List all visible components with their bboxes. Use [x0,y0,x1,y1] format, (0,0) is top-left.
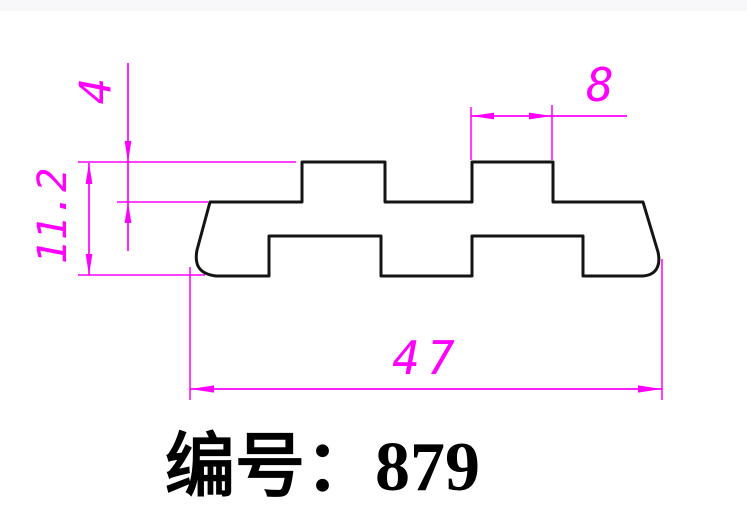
dimension-profile-width: 47 [190,331,662,393]
arrowhead-down-icon [86,254,93,275]
arrowhead-right-icon [529,113,552,120]
arrowhead-down-icon [125,141,132,162]
dimension-tab-width: 8 [471,58,627,119]
extension-lines [78,105,662,400]
technical-drawing-svg: 4 11.2 8 47 编号：879 [0,0,747,521]
dim-label-tab-width: 8 [586,58,614,112]
arrowhead-right-icon [638,385,662,392]
arrowhead-left-icon [471,113,494,120]
arrowhead-up-icon [86,163,93,184]
arrowhead-left-icon [190,385,214,392]
dimension-tab-height: 4 [71,63,132,251]
profile-outline [196,162,659,276]
drawing-title: 编号：879 [165,428,480,506]
drawing-canvas: 4 11.2 8 47 编号：879 [0,0,747,521]
dimension-profile-height: 11.2 [30,163,92,275]
dim-label-tab-height: 4 [71,78,122,105]
arrowhead-up-icon [125,202,132,223]
dim-label-profile-width: 47 [392,331,461,385]
dim-label-profile-height: 11.2 [30,168,76,264]
